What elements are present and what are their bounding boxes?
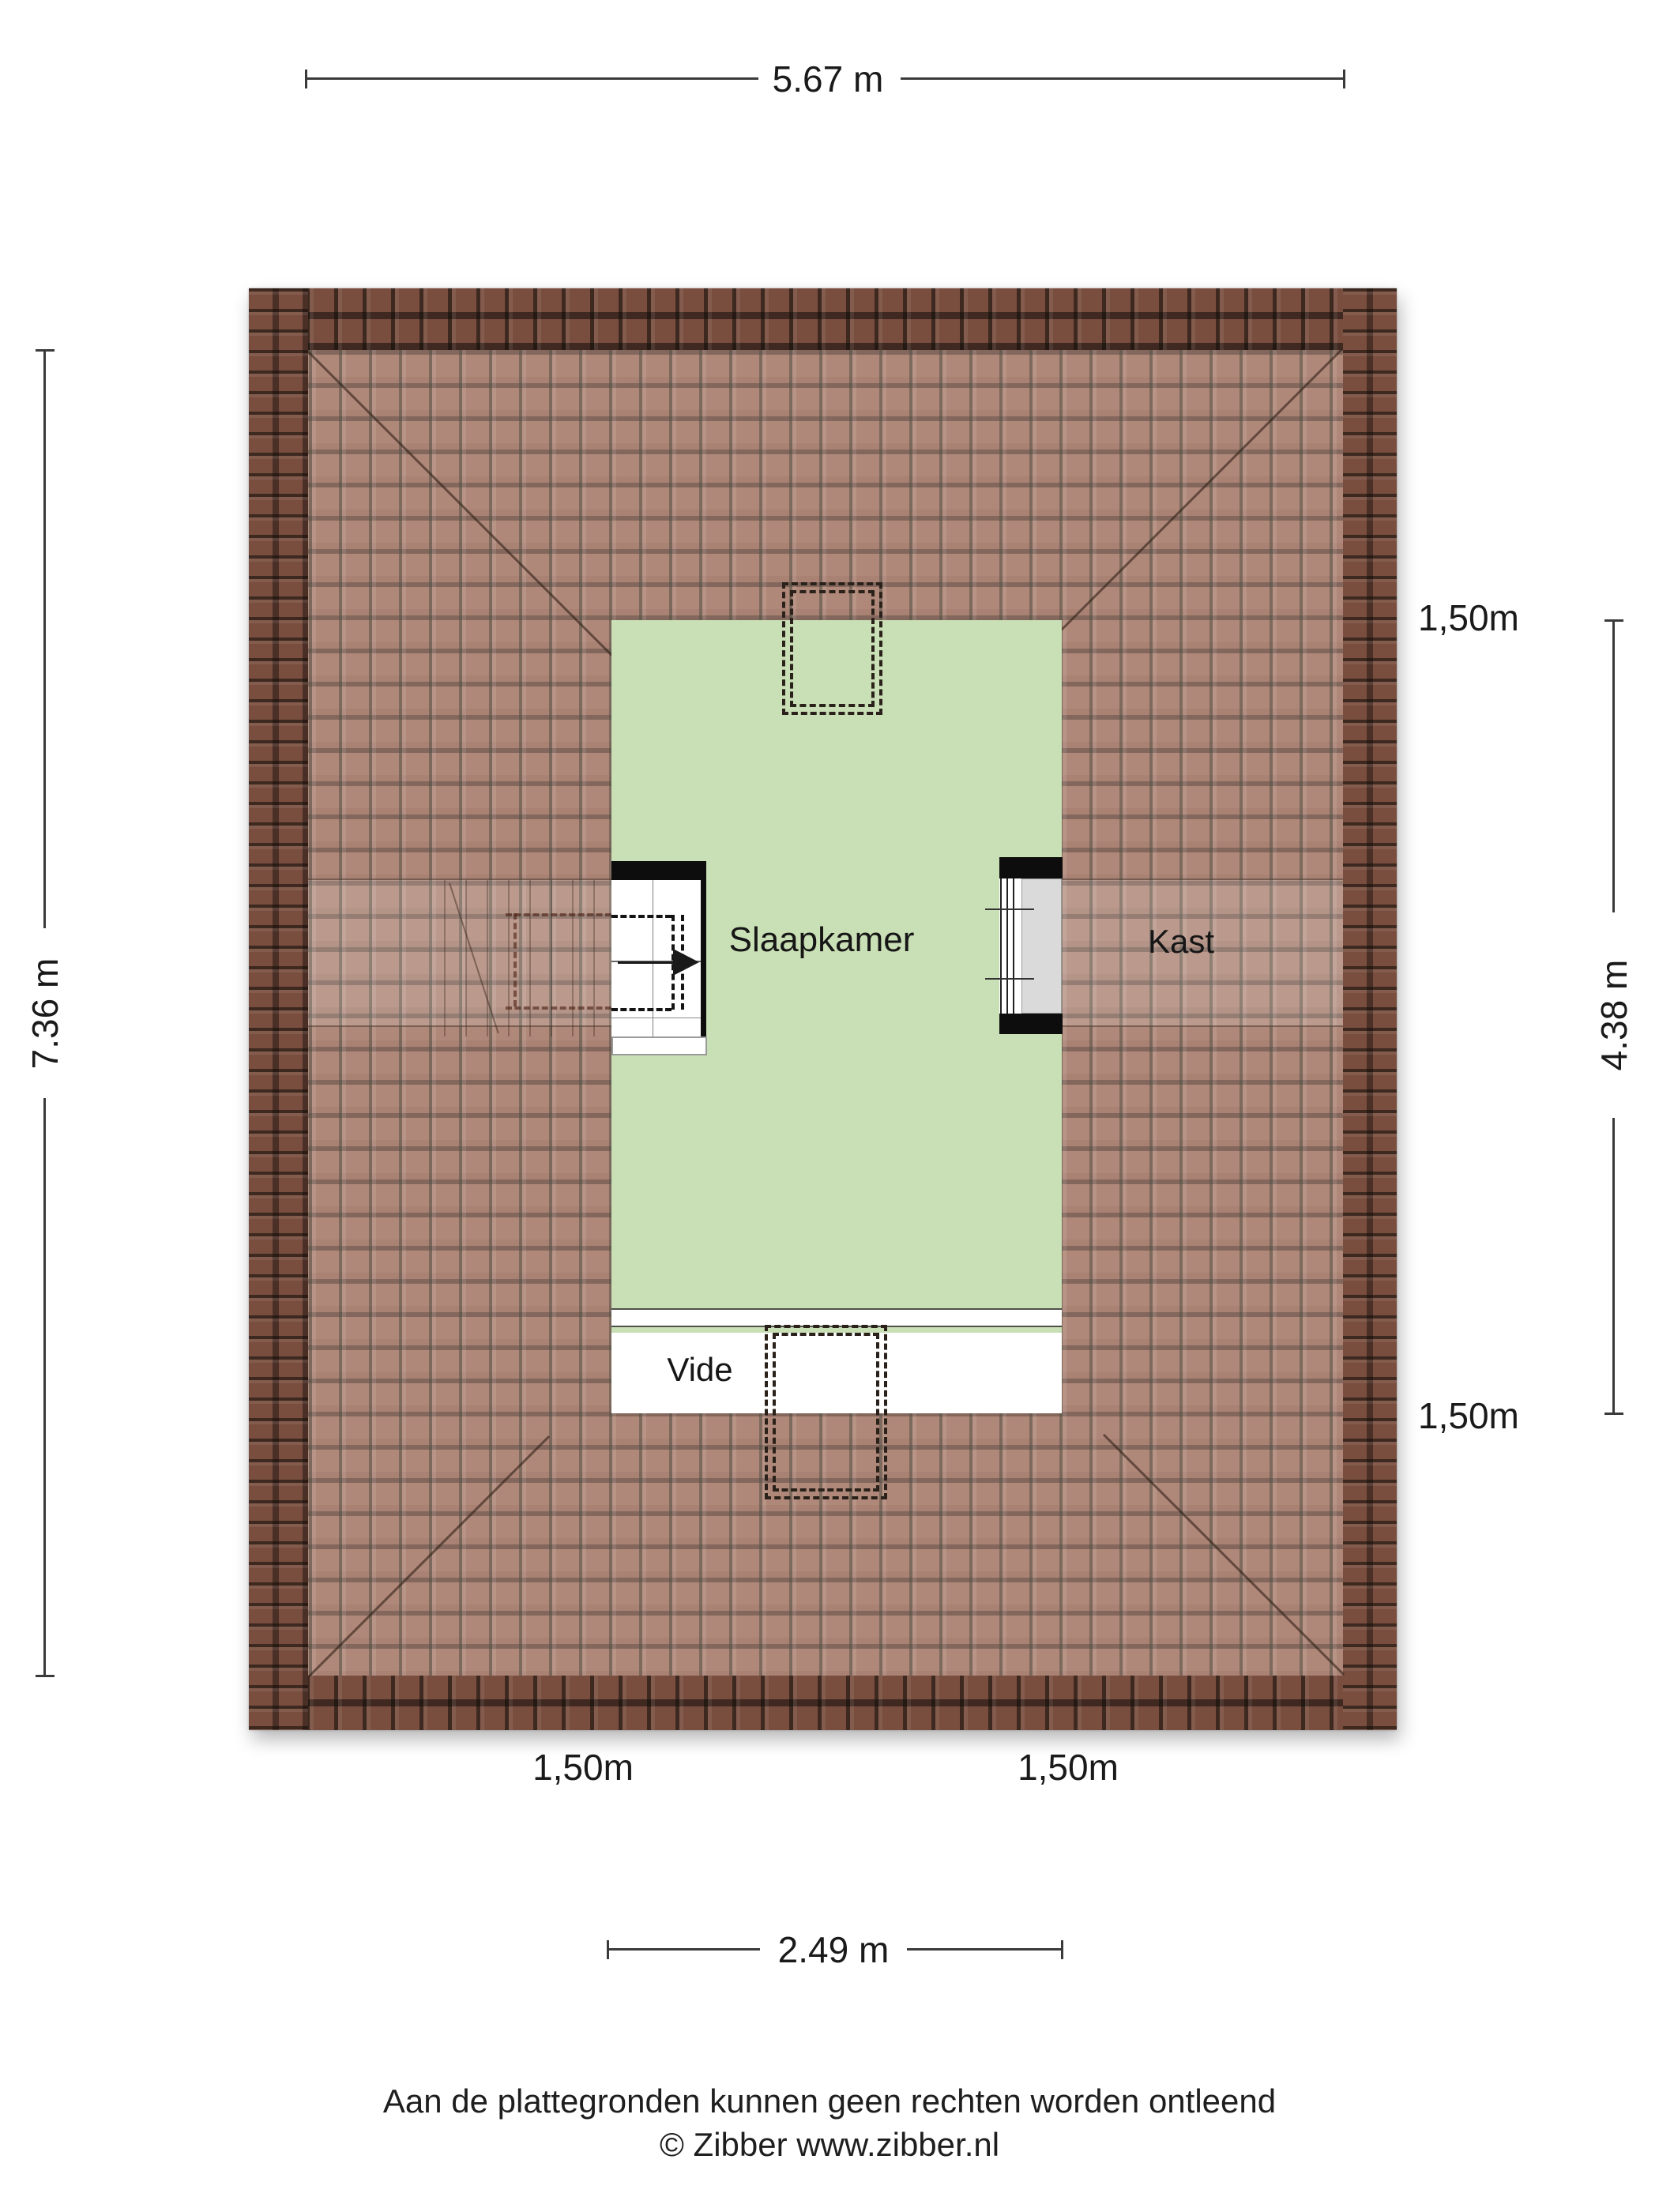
dim-bottom-line: [907, 1948, 1063, 1951]
stair-flight-divider: [653, 880, 653, 1036]
dim-right-line: [1612, 620, 1615, 912]
kast-door-leaf-line: [1006, 878, 1008, 1014]
roof-eave-right: [1343, 288, 1397, 1730]
stair-tread-line: [611, 1018, 701, 1018]
dim-top-label: 5.67 m: [773, 58, 884, 100]
stairwell-right-wall: [701, 861, 706, 1055]
kast-door-tick: [985, 978, 1034, 980]
stair-headroom-dashed-roof-top: [506, 913, 611, 916]
stairwell-landing: [611, 1036, 707, 1055]
kast-door-leaf-zone: [999, 878, 1021, 1014]
stair-direction-arrow-icon: [673, 949, 699, 976]
dim-top-line: [901, 77, 1345, 80]
stairs-under-roof: [444, 880, 611, 1036]
kast-door-leaf-line: [1000, 878, 1002, 1014]
dormer-outline-bottom: [765, 1325, 887, 1499]
footer-credit: © Zibber www.zibber.nl: [0, 2126, 1659, 2164]
dim-left-line: [43, 1098, 46, 1676]
dim-right-tick: [1604, 619, 1623, 622]
clearance-label-right-bottom: 1,50m: [1418, 1394, 1519, 1437]
kast-door-top-wall: [999, 857, 1063, 878]
dim-right-tick: [1604, 1413, 1623, 1415]
dormer-outline-top: [782, 582, 882, 715]
stairwell-top-wall: [611, 861, 706, 880]
dim-right-label: 4.38 m: [1593, 960, 1635, 1071]
dormer-outline-bottom-inner: [773, 1333, 879, 1492]
stair-headroom-dashed-line: [611, 915, 671, 918]
dim-bottom-line: [608, 1948, 760, 1951]
dim-left-line: [43, 350, 46, 928]
room-label-slaapkamer: Slaapkamer: [729, 920, 915, 960]
roof-eave-top: [249, 288, 1397, 350]
stair-headroom-dashed-roof-side: [513, 913, 517, 1006]
clearance-label-bottom-right: 1,50m: [1018, 1746, 1119, 1789]
footer-disclaimer: Aan de plattegronden kunnen geen rechten…: [0, 2082, 1659, 2120]
kast-door-tick: [985, 908, 1034, 910]
dim-left-tick: [36, 349, 55, 352]
roof-eave-left: [249, 288, 308, 1730]
dim-bottom-tick: [607, 1940, 609, 1959]
dim-top-line: [307, 77, 758, 80]
stair-headroom-dashed-roof-bottom: [506, 1006, 611, 1010]
clearance-label-right-top: 1,50m: [1418, 596, 1519, 639]
dim-top-tick: [305, 70, 307, 88]
kast-door-bottom-wall: [999, 1014, 1063, 1034]
dim-right-line: [1612, 1118, 1615, 1414]
dim-left-label: 7.36 m: [24, 958, 66, 1070]
floor-plan-canvas: Slaapkamer Kast Vide 5.67 m 7.36 m 4.38 …: [0, 0, 1659, 2212]
dim-top-tick: [1343, 70, 1345, 88]
dim-bottom-tick: [1061, 1940, 1063, 1959]
roof-eave-bottom: [249, 1676, 1397, 1730]
kast-door-leaf-line: [1013, 878, 1014, 1014]
dormer-outline-top-inner: [790, 590, 875, 707]
clearance-label-bottom-left: 1,50m: [532, 1746, 634, 1789]
dim-left-tick: [36, 1675, 55, 1677]
room-label-vide: Vide: [667, 1351, 732, 1389]
room-label-kast: Kast: [1148, 923, 1214, 961]
stair-direction-arrow-stem: [618, 961, 675, 964]
kast-door-panel: [1021, 878, 1062, 1014]
stair-headroom-dashed-line: [611, 1008, 671, 1011]
dim-bottom-label: 2.49 m: [778, 1928, 890, 1971]
